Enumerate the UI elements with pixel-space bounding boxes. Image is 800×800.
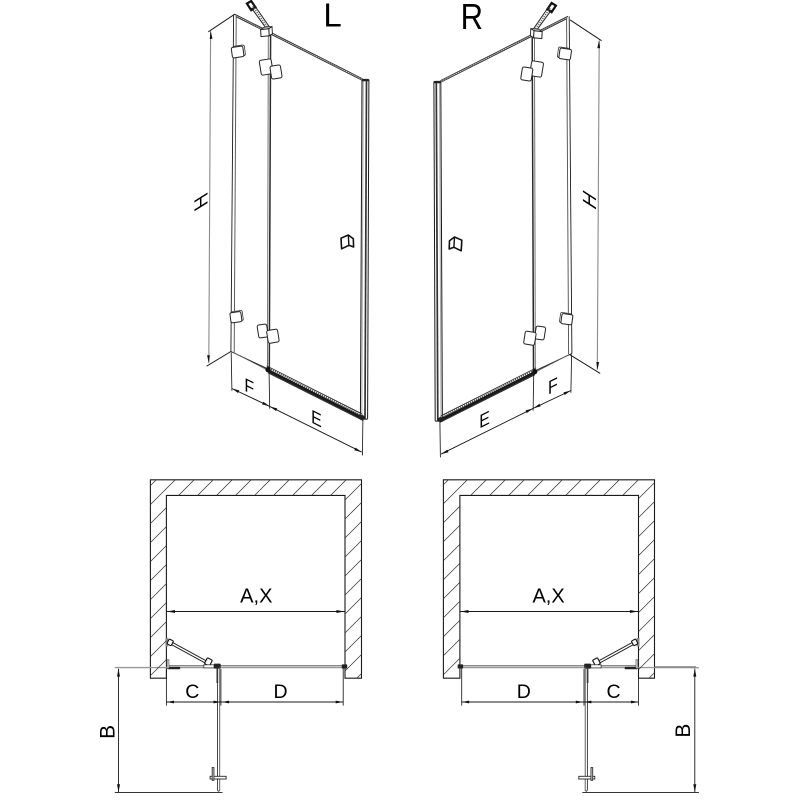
- svg-text:C: C: [606, 681, 620, 703]
- svg-text:B: B: [97, 725, 120, 739]
- svg-text:D: D: [517, 681, 531, 703]
- svg-text:A,X: A,X: [240, 586, 272, 608]
- svg-text:D: D: [273, 681, 287, 703]
- svg-text:C: C: [185, 681, 199, 703]
- svg-text:L: L: [323, 0, 341, 34]
- svg-text:A,X: A,X: [532, 586, 564, 608]
- svg-text:B: B: [672, 724, 695, 738]
- svg-text:R: R: [461, 0, 483, 38]
